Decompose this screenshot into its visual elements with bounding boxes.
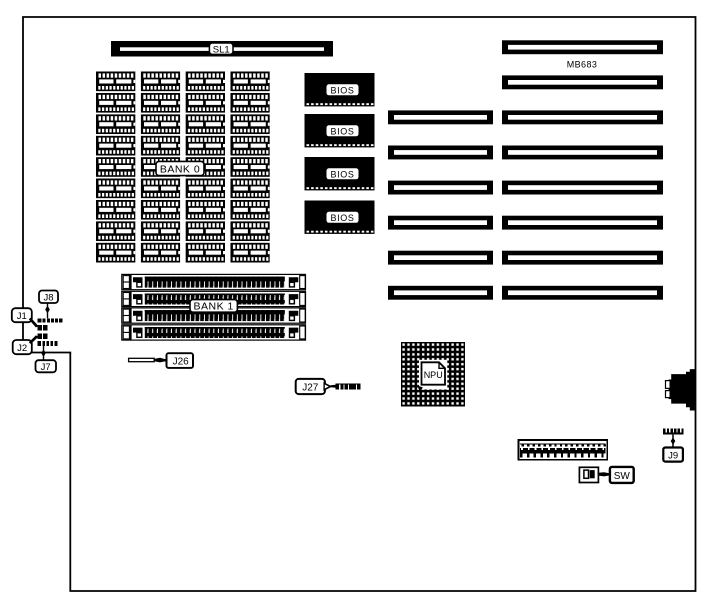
svg-text:J27: J27 — [302, 382, 319, 393]
svg-text:J8: J8 — [43, 293, 53, 304]
svg-text:NPU: NPU — [424, 370, 443, 380]
svg-text:J7: J7 — [41, 362, 51, 373]
svg-text:J1: J1 — [17, 311, 27, 322]
svg-text:BIOS: BIOS — [331, 126, 355, 136]
svg-text:BANK 0: BANK 0 — [160, 163, 200, 175]
svg-text:SL1: SL1 — [213, 44, 230, 55]
svg-text:BIOS: BIOS — [331, 85, 355, 95]
svg-text:MB683: MB683 — [567, 60, 598, 70]
svg-text:J26: J26 — [173, 356, 190, 367]
svg-text:BIOS: BIOS — [331, 169, 355, 179]
svg-text:J2: J2 — [17, 343, 27, 354]
svg-text:SW: SW — [614, 471, 631, 482]
svg-text:BIOS: BIOS — [331, 213, 355, 223]
svg-text:J9: J9 — [668, 451, 678, 462]
svg-text:BANK 1: BANK 1 — [194, 301, 234, 313]
